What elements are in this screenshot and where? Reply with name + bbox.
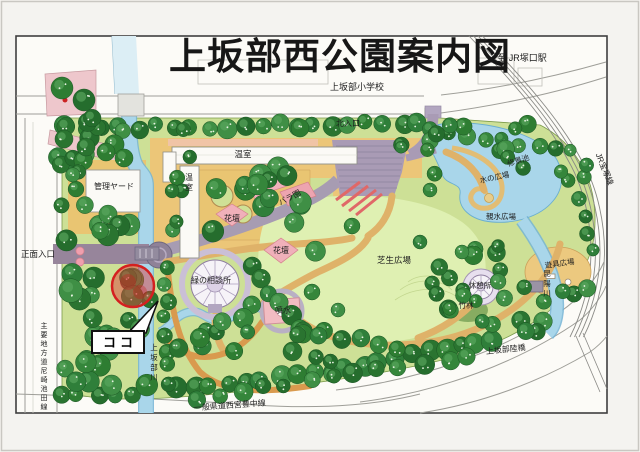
tree xyxy=(548,141,564,157)
tree xyxy=(252,269,271,288)
pond-island xyxy=(485,194,494,203)
tree xyxy=(206,178,226,198)
tree xyxy=(304,284,320,300)
tree xyxy=(290,327,306,343)
tree xyxy=(352,329,370,347)
tree xyxy=(169,339,188,358)
map-label-flowerbed-center: 花壇 xyxy=(273,245,289,255)
tree xyxy=(389,359,406,376)
tree xyxy=(157,278,171,292)
tree xyxy=(492,240,505,253)
tree xyxy=(131,121,149,139)
tree xyxy=(431,259,448,276)
tree xyxy=(555,284,570,299)
tree xyxy=(455,245,469,259)
tree xyxy=(202,220,224,242)
map-label-greenhouse-tall: 温室 xyxy=(185,173,193,192)
tree xyxy=(475,314,489,328)
tree xyxy=(428,126,445,143)
tree xyxy=(323,354,338,369)
tree xyxy=(237,117,256,136)
tree xyxy=(53,386,70,403)
tree xyxy=(496,290,512,306)
map-title: 上坂部西公園案内図 xyxy=(169,36,511,77)
tree xyxy=(579,210,592,223)
tree xyxy=(56,230,77,251)
map-label-shinsui-plaza: 親水広場 xyxy=(486,211,516,221)
tree xyxy=(102,375,122,395)
tree xyxy=(66,372,86,392)
tree xyxy=(256,118,272,134)
tree xyxy=(389,341,405,357)
tree xyxy=(217,119,237,139)
tree xyxy=(225,342,242,359)
tree xyxy=(277,166,297,186)
tree xyxy=(183,150,197,164)
tree xyxy=(442,352,460,370)
map-label-lawn-plaza: 芝生広場 xyxy=(377,255,412,265)
river-bridge xyxy=(135,247,159,260)
tree xyxy=(160,294,176,310)
management-yard-building xyxy=(86,170,140,212)
tree xyxy=(51,77,73,99)
tree xyxy=(370,336,387,353)
tree xyxy=(490,274,506,290)
tree xyxy=(343,363,363,383)
map-label-flowerbed-west: 花壇 xyxy=(224,213,240,223)
tree xyxy=(310,327,327,344)
tree xyxy=(427,166,442,181)
tree xyxy=(331,303,345,317)
tree xyxy=(54,198,69,213)
map-label-rest-house: 休憩所 xyxy=(469,280,492,290)
tree xyxy=(309,350,324,365)
map-label-green-consultation: 緑の相談所 xyxy=(191,275,231,285)
tree xyxy=(169,170,184,185)
tree xyxy=(413,235,427,249)
tree xyxy=(161,377,176,392)
tree xyxy=(288,365,307,384)
tree xyxy=(517,280,532,295)
tree xyxy=(291,119,309,137)
tree xyxy=(283,342,302,361)
tree xyxy=(68,181,84,197)
tree xyxy=(76,197,93,214)
map-label-fountain: 噴水 xyxy=(275,305,291,315)
map-label-koya-river: 昆陽川 xyxy=(543,269,551,298)
tree xyxy=(580,226,595,241)
tree xyxy=(176,122,190,136)
tree xyxy=(304,372,320,388)
tree xyxy=(148,117,163,132)
tree xyxy=(203,121,218,136)
tree xyxy=(479,132,494,147)
tree xyxy=(578,280,595,297)
tree xyxy=(170,215,184,229)
tree xyxy=(160,357,175,372)
map-label-kamisakabe-river: 上坂部川 xyxy=(150,343,158,382)
tree xyxy=(276,379,290,393)
river-culvert xyxy=(118,94,144,116)
tree xyxy=(160,261,174,275)
tree xyxy=(165,184,179,198)
tree xyxy=(83,267,105,289)
tree xyxy=(458,348,475,365)
tree xyxy=(571,191,586,206)
tree xyxy=(327,369,341,383)
tree xyxy=(423,183,437,197)
tree xyxy=(97,143,115,161)
park-map-svg: ココ 上坂部西公園案内図 上坂部小学校至 JR塚口駅JR宝塚線北入口管理ヤード温… xyxy=(0,0,640,452)
tree xyxy=(429,286,444,301)
tree xyxy=(213,313,231,331)
tree xyxy=(77,138,95,156)
tree xyxy=(368,360,384,376)
tree xyxy=(255,378,271,394)
tree xyxy=(415,355,435,375)
tree xyxy=(83,109,101,127)
tree xyxy=(587,244,599,256)
tree xyxy=(234,382,253,401)
tree xyxy=(55,130,73,148)
tree xyxy=(374,115,391,132)
tree xyxy=(344,218,360,234)
tree xyxy=(421,143,435,157)
tree xyxy=(83,309,102,328)
tree xyxy=(271,114,289,132)
play-equipment xyxy=(565,279,571,285)
tree xyxy=(157,328,173,344)
map-label-to-jr-tsukaguchi: 至 JR塚口駅 xyxy=(497,53,547,63)
tree xyxy=(66,168,80,182)
tree xyxy=(395,141,407,153)
tree xyxy=(508,122,522,136)
tree xyxy=(579,158,593,172)
tree xyxy=(240,325,254,339)
map-label-greenhouse-long: 温室 xyxy=(234,149,252,159)
map-label-north-entrance: 北入口 xyxy=(336,119,360,128)
map-label-school: 上坂部小学校 xyxy=(330,81,384,92)
tree xyxy=(564,144,576,156)
map-label-main-entrance: 正面入口 xyxy=(21,249,55,259)
park-map-photo: ココ 上坂部西公園案内図 上坂部小学校至 JR塚口駅JR宝塚線北入口管理ヤード温… xyxy=(0,0,640,452)
tree xyxy=(247,174,268,195)
tree xyxy=(333,330,351,348)
tree xyxy=(554,165,568,179)
tree xyxy=(59,279,83,303)
tree xyxy=(190,328,209,347)
tree xyxy=(532,138,548,154)
marker-label: ココ xyxy=(103,335,137,350)
tree xyxy=(92,222,109,239)
tree xyxy=(305,241,325,261)
tree xyxy=(443,302,457,316)
tree xyxy=(442,118,457,133)
map-label-management-yard: 管理ヤード xyxy=(94,181,134,191)
tree xyxy=(157,310,170,323)
tree xyxy=(284,213,304,233)
tree xyxy=(73,89,95,111)
tree xyxy=(115,149,133,167)
tree xyxy=(517,323,534,340)
greenhouse-long-building xyxy=(172,147,357,164)
tree xyxy=(199,378,216,395)
map-label-bamboo-grove: 竹林 xyxy=(459,300,474,310)
tree xyxy=(76,352,97,373)
